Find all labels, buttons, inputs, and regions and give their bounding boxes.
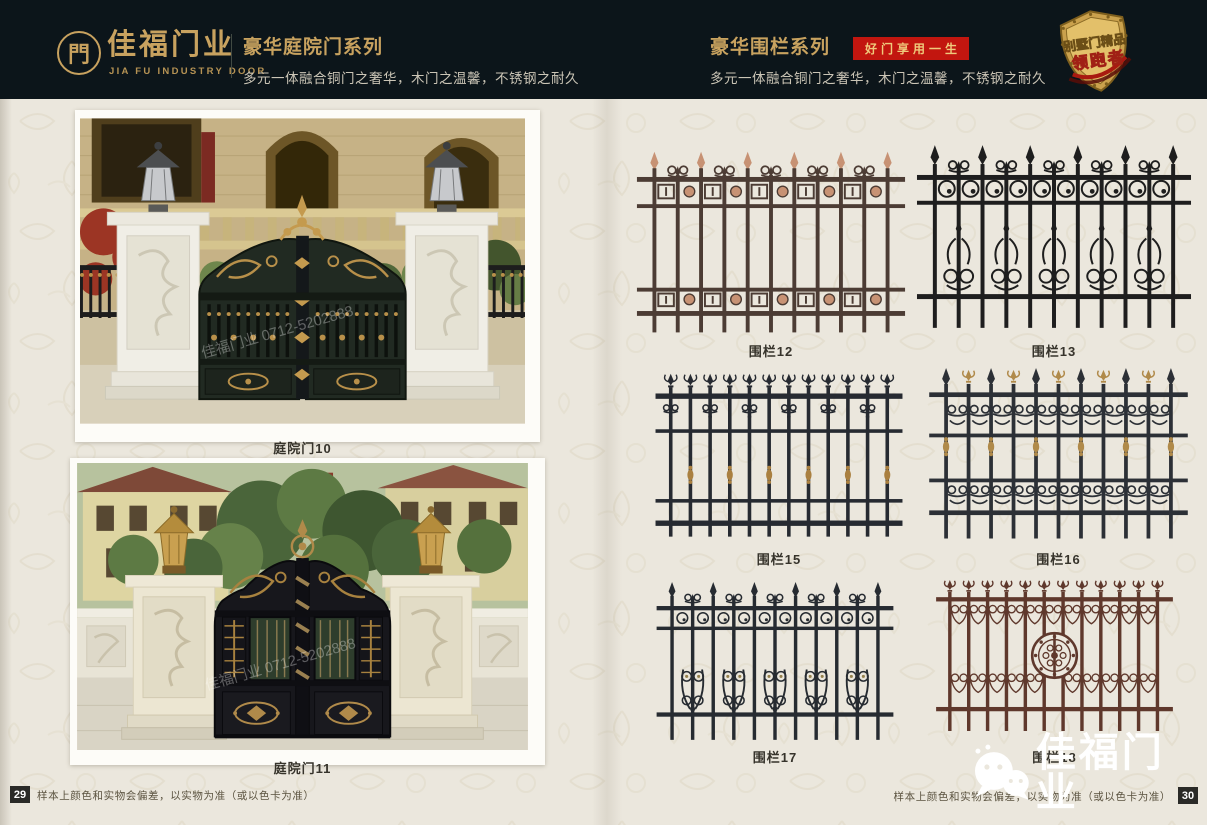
fence-figure-16 xyxy=(922,368,1195,546)
gate-photo-11-image: 佳福门业 0712-5202888 xyxy=(75,463,530,750)
fence-15-image xyxy=(645,372,913,542)
series-left-subtitle: 多元一体融合铜门之奢华，木门之温馨，不锈钢之耐久 xyxy=(243,67,579,87)
brand-watermark-text: 佳福门业 xyxy=(1036,733,1207,813)
fence-12-caption: 围栏12 xyxy=(635,341,907,360)
fence-figure-15 xyxy=(645,372,913,542)
fence-13-caption: 围栏13 xyxy=(915,341,1193,360)
page-gutter-shade xyxy=(592,99,622,825)
header-bar: 門 佳福门业 JIA FU INDUSTRY DOOR 豪华庭院门系列 多元一体… xyxy=(0,0,1207,99)
header-divider xyxy=(231,34,232,78)
fence-figure-17 xyxy=(643,582,907,745)
fence-16-caption: 围栏16 xyxy=(922,549,1195,568)
wechat-icon xyxy=(968,743,1032,803)
brand-watermark: 佳福门业 xyxy=(968,733,1207,813)
disclaimer-left: 样本上颜色和实物会偏差，以实物为准（或以色卡为准） xyxy=(37,788,315,803)
page-edge-shade xyxy=(0,99,12,825)
gate-photo-10-caption: 庭院门10 xyxy=(75,438,530,457)
fence-17-caption: 围栏17 xyxy=(643,747,907,766)
fence-17-image xyxy=(643,582,907,745)
logo-symbol: 門 xyxy=(68,37,90,69)
series-left: 豪华庭院门系列 多元一体融合铜门之奢华，木门之温馨，不锈钢之耐久 xyxy=(243,32,579,87)
gate-photo-11-caption: 庭院门11 xyxy=(70,758,535,777)
gate-photo-10-image: 佳福门业 0712-5202888 xyxy=(80,115,525,427)
series-left-title: 豪华庭院门系列 xyxy=(243,32,579,59)
gate-photo-10: 佳福门业 0712-5202888 xyxy=(75,110,540,442)
fence-18-image xyxy=(912,580,1197,743)
fence-figure-12 xyxy=(635,150,907,338)
series-right-subtitle: 多元一体融合铜门之奢华，木门之温馨，不锈钢之耐久 xyxy=(710,67,1046,87)
fence-figure-13 xyxy=(915,142,1193,337)
fence-figure-18 xyxy=(912,580,1197,743)
slogan-badge: 好门享用一生 xyxy=(853,37,969,60)
fence-13-image xyxy=(915,142,1193,337)
shield-emblem-icon: 别墅门精品 领跑者 xyxy=(1050,5,1142,97)
logo-door-icon: 門 xyxy=(57,31,101,75)
fence-15-caption: 围栏15 xyxy=(645,549,913,568)
gate-photo-11: 佳福门业 0712-5202888 xyxy=(70,458,545,765)
catalog-page: 門 佳福门业 JIA FU INDUSTRY DOOR 豪华庭院门系列 多元一体… xyxy=(0,0,1207,825)
fence-16-image xyxy=(922,368,1195,546)
fence-12-image xyxy=(635,150,907,338)
brand-name: 佳福门业 xyxy=(107,31,235,60)
page-number-left: 29 xyxy=(10,786,30,803)
